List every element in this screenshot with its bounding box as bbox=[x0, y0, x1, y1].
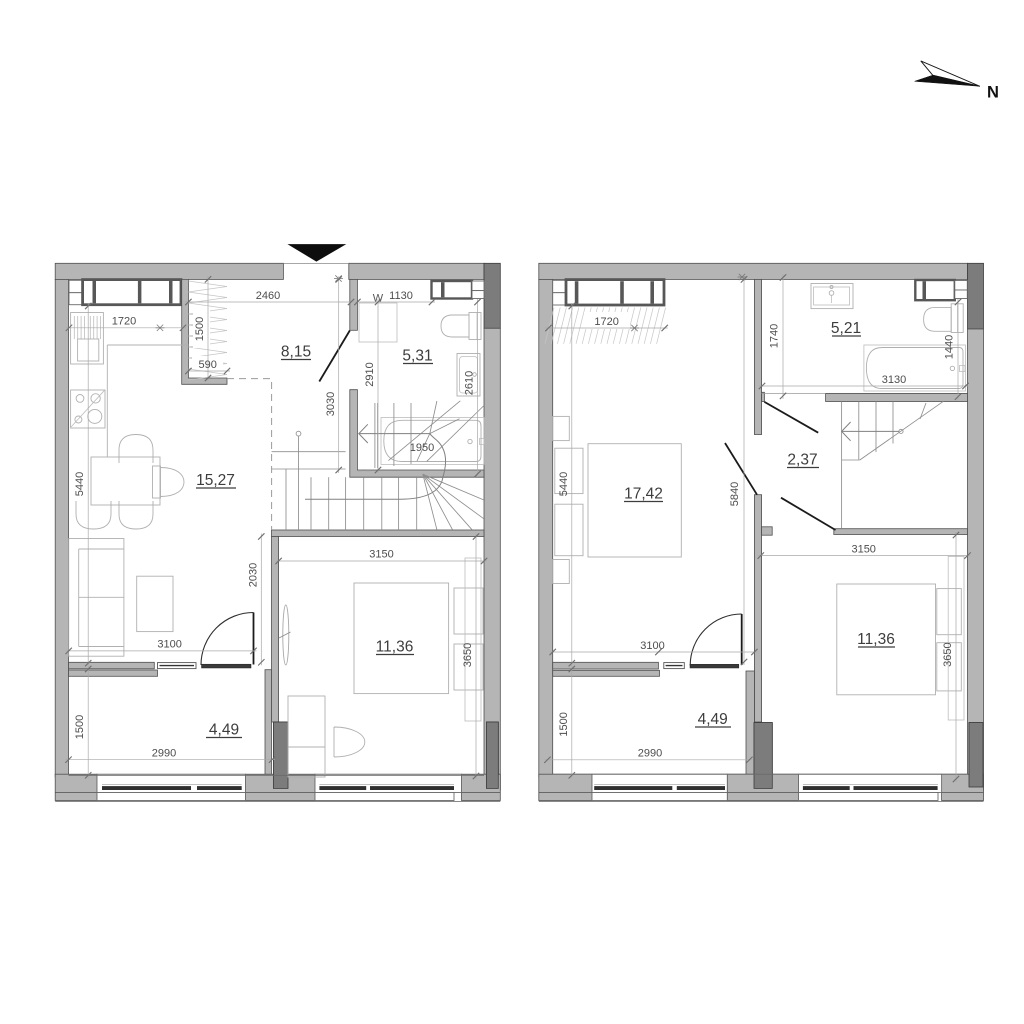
svg-text:3030: 3030 bbox=[325, 392, 337, 416]
svg-text:2030: 2030 bbox=[247, 563, 259, 587]
svg-text:1950: 1950 bbox=[410, 442, 434, 454]
svg-text:3650: 3650 bbox=[462, 643, 474, 667]
svg-text:2610: 2610 bbox=[464, 371, 476, 395]
svg-text:2460: 2460 bbox=[256, 290, 280, 302]
svg-text:3100: 3100 bbox=[157, 639, 181, 651]
svg-text:4,49: 4,49 bbox=[698, 711, 728, 728]
svg-text:3130: 3130 bbox=[882, 374, 906, 386]
svg-text:5,21: 5,21 bbox=[831, 320, 861, 337]
svg-text:1740: 1740 bbox=[769, 324, 781, 348]
svg-text:11,36: 11,36 bbox=[857, 631, 895, 648]
svg-text:590: 590 bbox=[199, 359, 217, 371]
svg-text:5440: 5440 bbox=[558, 472, 570, 496]
svg-text:5,31: 5,31 bbox=[402, 348, 432, 365]
svg-text:1500: 1500 bbox=[74, 715, 86, 739]
svg-text:2910: 2910 bbox=[364, 362, 376, 386]
svg-text:1500: 1500 bbox=[194, 317, 206, 341]
svg-text:15,27: 15,27 bbox=[196, 472, 235, 489]
svg-text:1500: 1500 bbox=[558, 712, 570, 736]
svg-text:11,36: 11,36 bbox=[376, 639, 414, 656]
svg-text:3650: 3650 bbox=[942, 642, 954, 666]
svg-text:1130: 1130 bbox=[389, 290, 413, 302]
svg-text:5440: 5440 bbox=[74, 472, 86, 496]
svg-text:1440: 1440 bbox=[944, 335, 956, 359]
svg-text:1720: 1720 bbox=[112, 316, 136, 328]
svg-text:4,49: 4,49 bbox=[209, 722, 239, 739]
svg-text:1720: 1720 bbox=[594, 316, 618, 328]
svg-text:2,37: 2,37 bbox=[787, 452, 817, 469]
svg-text:2990: 2990 bbox=[152, 748, 176, 760]
svg-text:3150: 3150 bbox=[369, 549, 393, 561]
svg-text:5840: 5840 bbox=[729, 482, 741, 506]
svg-text:N: N bbox=[987, 84, 999, 102]
svg-text:3100: 3100 bbox=[640, 640, 664, 652]
svg-text:8,15: 8,15 bbox=[281, 344, 311, 361]
svg-text:3150: 3150 bbox=[851, 543, 875, 555]
svg-text:17,42: 17,42 bbox=[624, 486, 663, 503]
svg-text:2990: 2990 bbox=[638, 748, 662, 760]
